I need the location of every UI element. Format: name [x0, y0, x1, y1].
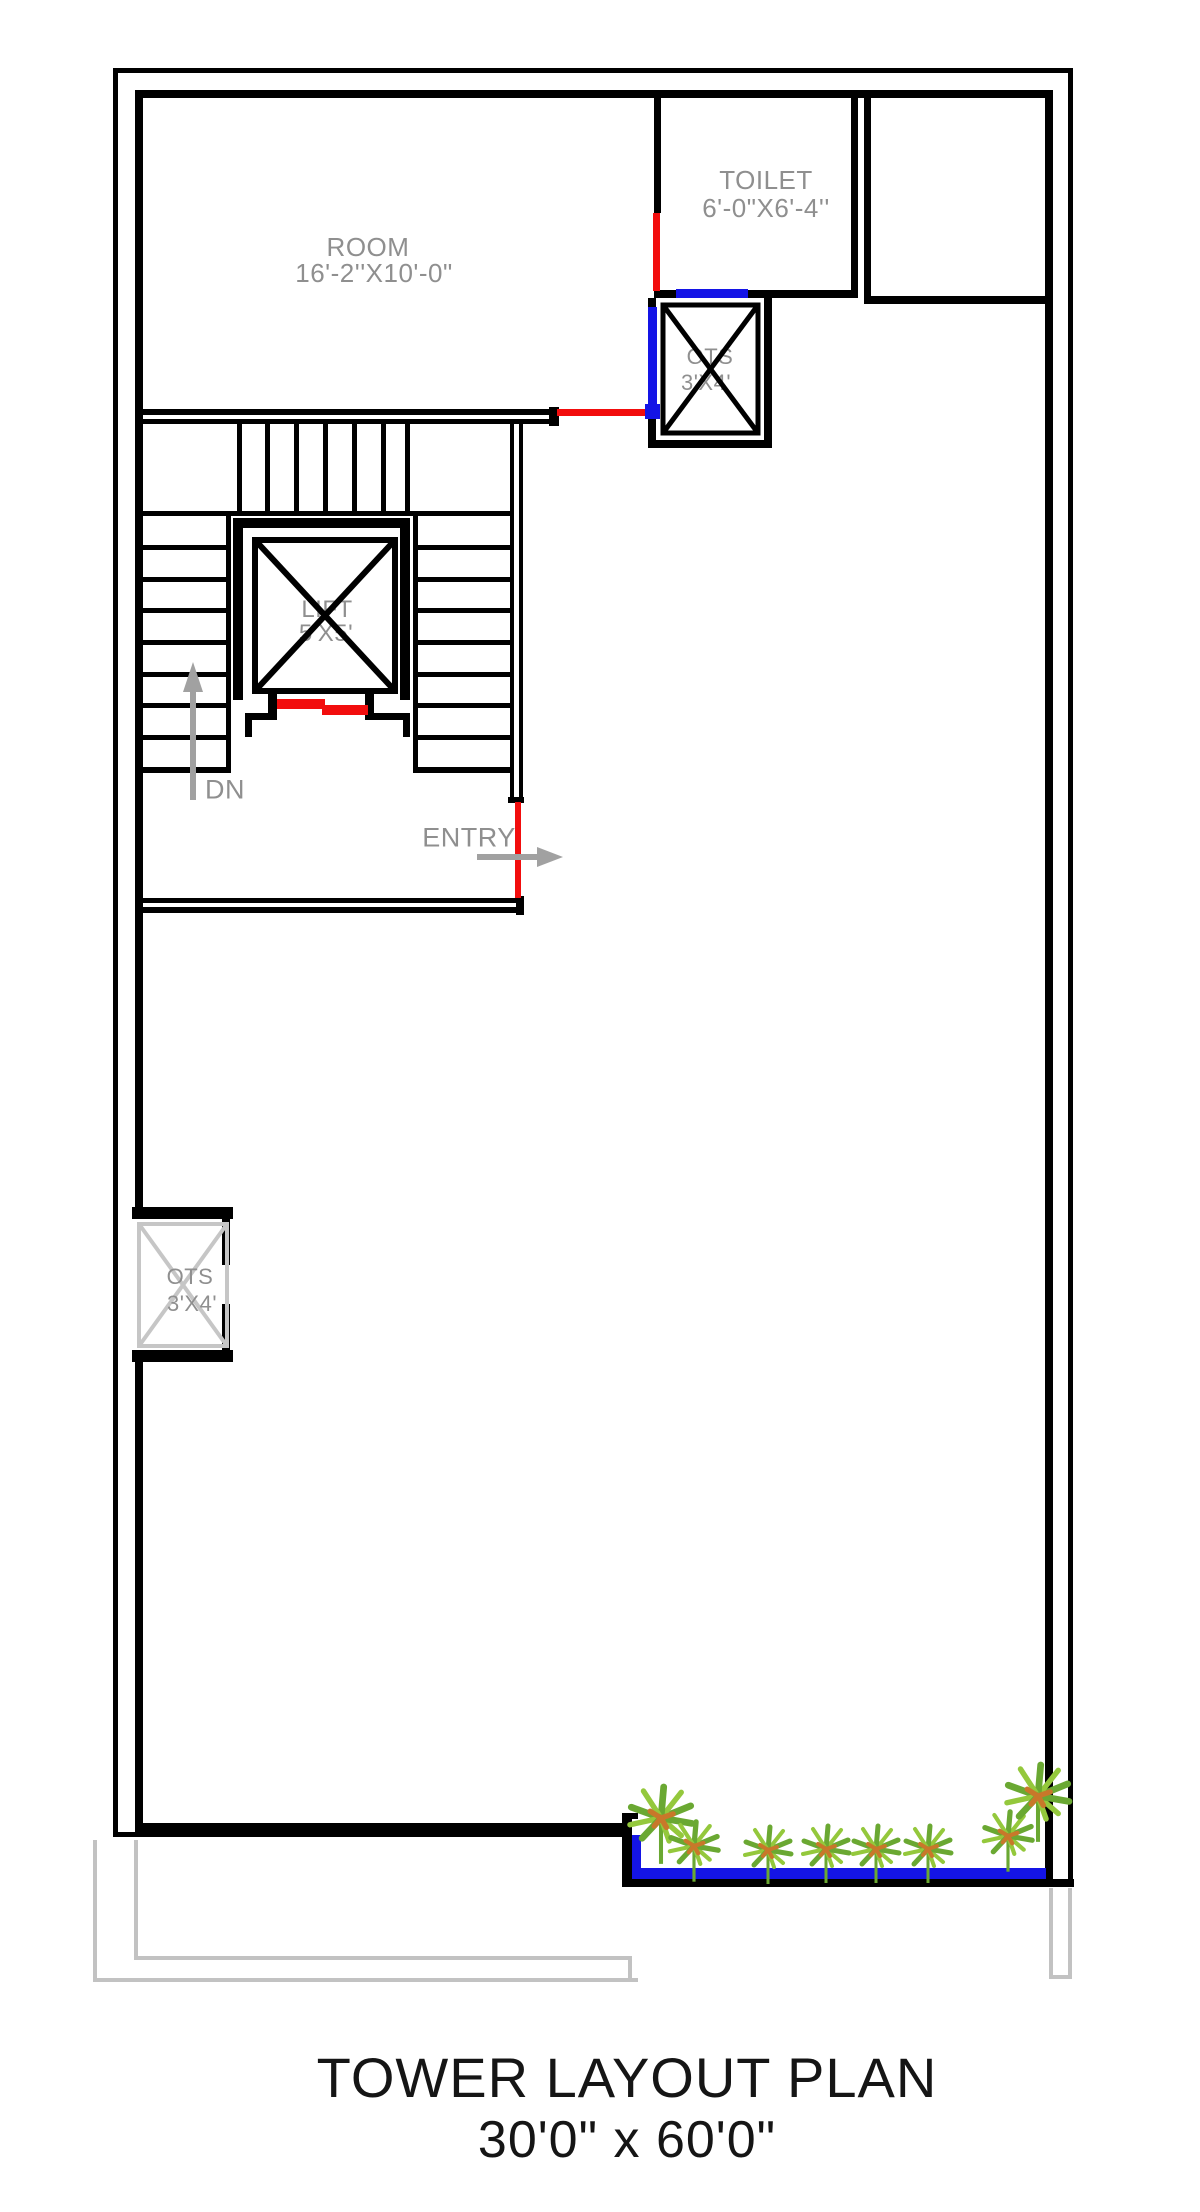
building-walls — [135, 90, 1053, 1886]
planter-plants — [630, 1765, 1069, 1884]
down-label: DN — [205, 777, 245, 804]
outer-boundary — [113, 68, 1074, 1887]
plan-title: TOWER LAYOUT PLAN — [317, 2050, 938, 2106]
ots-left-label: OTS — [167, 1266, 214, 1288]
ots-left-dimension: 3'X4' — [167, 1293, 217, 1315]
entry-label: ENTRY — [422, 825, 516, 852]
room-bottom-wall — [135, 407, 559, 426]
door-openings — [277, 213, 660, 898]
room-label: ROOM — [327, 234, 410, 260]
entry-door — [515, 802, 521, 898]
setback-boundary — [95, 1840, 1072, 1980]
ots-corner-window — [645, 404, 660, 419]
lift-door — [322, 705, 368, 715]
toilet-dimension: 6'-0"X6'-4'' — [702, 195, 830, 221]
room-dimension: 16'-2''X10'-0" — [295, 260, 453, 286]
floor-plan-drawing — [0, 0, 1200, 2212]
window-strips — [632, 289, 1046, 1879]
ots-top-window — [676, 289, 748, 298]
ots-top-shaft — [648, 298, 772, 448]
lift-door — [277, 699, 325, 709]
down-arrow-icon — [183, 662, 203, 800]
toilet-label: TOILET — [719, 167, 813, 193]
floor-plan-canvas: ROOM 16'-2''X10'-0" TOILET 6'-0"X6'-4'' … — [0, 0, 1200, 2212]
room-door — [557, 409, 649, 416]
ots-left-window — [648, 307, 657, 407]
plan-size: 30'0" x 60'0" — [478, 2114, 776, 2166]
toilet-door — [653, 213, 660, 291]
